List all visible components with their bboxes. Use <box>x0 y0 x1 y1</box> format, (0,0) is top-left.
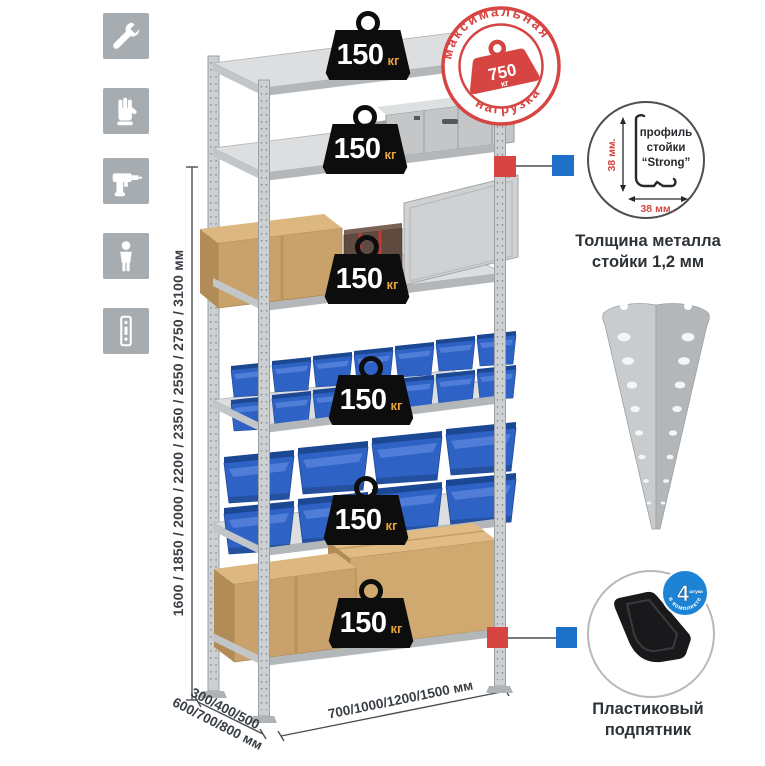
callout-top <box>494 155 574 177</box>
gloves-icon <box>107 92 145 130</box>
feature-icon-box <box>103 308 149 354</box>
profile-label-3: “Strong” <box>642 157 691 169</box>
shelf-load-badge: 150кг <box>326 579 416 648</box>
drill-icon <box>107 162 145 200</box>
weight-ring <box>359 579 383 603</box>
foot-count-badge: 4 штуки в комплекте <box>660 568 710 618</box>
profile-drawing: 38 мм. 38 мм. профиль стойки “Strong” <box>589 103 703 217</box>
weight-ring <box>353 105 377 129</box>
shelf-load-badge: 150кг <box>322 235 412 304</box>
foot-caption: Пластиковый подпятник <box>572 699 724 742</box>
shelf-load-badge: 150кг <box>320 105 410 174</box>
feature-icon-box <box>103 158 149 204</box>
profile-detail-circle: 38 мм. 38 мм. профиль стойки “Strong” <box>587 101 705 219</box>
callout-bottom <box>487 627 577 648</box>
foot-badge-small: штуки <box>689 589 703 594</box>
wrench-icon <box>107 17 145 55</box>
feature-icon-box <box>103 88 149 134</box>
foot-badge-value: 4 <box>677 581 690 606</box>
shelf-load-badge: 150кг <box>326 356 416 425</box>
cardboard-box <box>200 214 342 308</box>
shelf-load-badge: 150кг <box>323 11 413 80</box>
height-dimension-line <box>186 167 198 700</box>
weight-ring <box>354 476 378 500</box>
feature-icon-box <box>103 13 149 59</box>
profile-dim-vertical: 38 мм. <box>606 138 618 171</box>
rack-profile-icon <box>107 312 145 350</box>
weight-ring <box>355 235 379 259</box>
weight-ring <box>356 11 380 35</box>
corner-post-image <box>594 297 718 537</box>
height-dimensions-label: 1600 / 1850 / 2000 / 2200 / 2350 / 2550 … <box>170 163 186 703</box>
weight-ring <box>359 356 383 380</box>
person-icon <box>107 237 145 275</box>
profile-dim-horizontal: 38 мм. <box>640 203 673 215</box>
feature-icon-box <box>103 233 149 279</box>
profile-caption: Толщина металла стойки 1,2 мм <box>563 231 733 274</box>
profile-label-1: профиль <box>640 127 693 139</box>
shelf-load-badge: 150кг <box>321 476 411 545</box>
product-infographic-shelving: { "page": {"width": 765, "height": 765, … <box>0 0 765 765</box>
profile-label-2: стойки <box>647 142 686 154</box>
